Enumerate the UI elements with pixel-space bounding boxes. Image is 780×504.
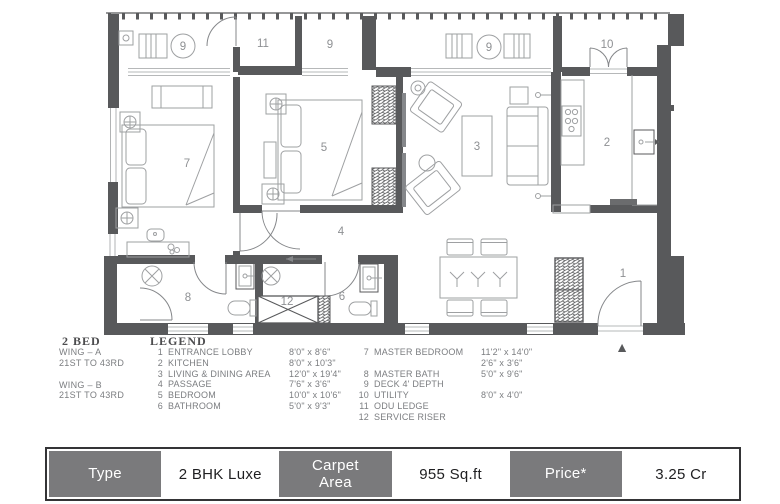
wing-a-label: WING – A	[59, 347, 124, 358]
master-bedroom-furniture	[116, 86, 214, 257]
room-label-entrance: 1	[620, 268, 626, 280]
legend-item-number	[352, 358, 369, 369]
room-label-odu: 11	[257, 38, 269, 50]
legend-item-name: UTILITY	[374, 390, 476, 401]
legend-item-name: BEDROOM	[168, 390, 284, 401]
entrance-lobby-furniture	[555, 258, 583, 322]
legend-item-number: 9	[352, 379, 369, 390]
legend-item-name: MASTER BEDROOM	[374, 347, 476, 358]
legend-item-number: 10	[352, 390, 369, 401]
master-bath-fixtures	[142, 263, 256, 316]
bedroom5-furniture	[262, 86, 406, 208]
legend-item-number: 8	[352, 369, 369, 380]
wing-b-label: WING – B	[59, 380, 124, 391]
wing-b-floors: 21ST TO 43RD	[59, 390, 124, 401]
wing-a-floors: 21ST TO 43RD	[59, 358, 124, 369]
legend-item-name: MASTER BATH	[374, 369, 476, 380]
floor-plan-drawing: 9 11 9 9 10 7 5 3 2 4 8 12 6 1 ▲	[0, 0, 780, 360]
legend-item-number: 12	[352, 412, 369, 423]
room-label-master-bath: 8	[185, 292, 191, 304]
room-label-bathroom: 6	[339, 291, 345, 303]
legend-item-number: 7	[352, 347, 369, 358]
legend-item-dim: 11'2" x 14'0"	[481, 347, 563, 358]
service-riser	[258, 296, 330, 323]
room-label-riser: 12	[281, 296, 294, 308]
floor-plan-page: 9 11 9 9 10 7 5 3 2 4 8 12 6 1 ▲ 2 BED L…	[0, 0, 780, 504]
legend-item-number: 2	[150, 358, 163, 369]
room-label-living: 3	[474, 141, 480, 153]
legend-item-name: LIVING & DINING AREA	[168, 369, 284, 380]
legend-item-number: 3	[150, 369, 163, 380]
spec-value: 3.25 Cr	[655, 466, 706, 483]
room-label-deck-a: 9	[180, 41, 186, 53]
utility-door-sill	[590, 67, 627, 76]
spec-table: Type 2 BHK Luxe Carpet Area 955 Sq.ft Pr…	[45, 447, 741, 501]
legend-item-name: PASSAGE	[168, 379, 284, 390]
spec-label: Price*	[545, 465, 587, 482]
deck-railing	[106, 13, 670, 17]
legend-item-dim: 2'6" x 3'6"	[481, 358, 563, 369]
spec-value: 955 Sq.ft	[419, 466, 482, 483]
room-label-utility: 10	[601, 39, 614, 51]
legend-item-name: ODU LEDGE	[374, 401, 476, 412]
spec-cell-carpet-header: Carpet Area	[279, 451, 391, 497]
legend-item-number: 6	[150, 401, 163, 412]
spec-label: Carpet Area	[310, 457, 361, 492]
spec-cell-price-header: Price*	[510, 451, 622, 497]
spec-cell-type-header: Type	[49, 451, 161, 497]
room-label-deck-c: 9	[486, 42, 492, 54]
legend-item-name: DECK 4' DEPTH	[374, 379, 476, 390]
legend-item-number: 11	[352, 401, 369, 412]
entry-arrow-icon: ▲	[615, 339, 629, 355]
legend-item-name	[374, 358, 476, 369]
spec-cell-price-value: 3.25 Cr	[625, 451, 737, 497]
legend-column-2: 7 MASTER BEDROOM 11'2" x 14'0" 2'6" x 3'…	[352, 347, 563, 423]
entrance-opening	[598, 323, 643, 335]
spec-label: Type	[88, 465, 122, 482]
legend-column-1: 1 ENTRANCE LOBBY 8'0" x 8'6" 2 KITCHEN 8…	[150, 347, 365, 412]
spec-cell-type-value: 2 BHK Luxe	[164, 451, 276, 497]
legend-item-dim	[481, 401, 563, 412]
room-label-deck-b: 9	[327, 39, 333, 51]
room-label-kitchen: 2	[604, 137, 610, 149]
legend-item-number: 4	[150, 379, 163, 390]
legend-item-name: ENTRANCE LOBBY	[168, 347, 284, 358]
legend-item-name: SERVICE RISER	[374, 412, 476, 423]
legend-item-dim	[481, 412, 563, 423]
legend-item-dim: 5'0" x 9'6"	[481, 369, 563, 380]
room-label-master-bedroom: 7	[184, 158, 190, 170]
spec-cell-carpet-value: 955 Sq.ft	[395, 451, 507, 497]
legend-item-number: 5	[150, 390, 163, 401]
legend-item-name: KITCHEN	[168, 358, 284, 369]
room-label-bedroom: 5	[321, 142, 327, 154]
dining-furniture	[440, 239, 517, 316]
legend-item-dim	[481, 379, 563, 390]
legend-item-name: BATHROOM	[168, 401, 284, 412]
legend-item-number: 1	[150, 347, 163, 358]
wing-info: WING – A 21ST TO 43RD WING – B 21ST TO 4…	[59, 347, 124, 401]
legend-item-dim: 8'0" x 4'0"	[481, 390, 563, 401]
room-label-passage: 4	[338, 226, 345, 238]
spec-value: 2 BHK Luxe	[179, 466, 262, 483]
